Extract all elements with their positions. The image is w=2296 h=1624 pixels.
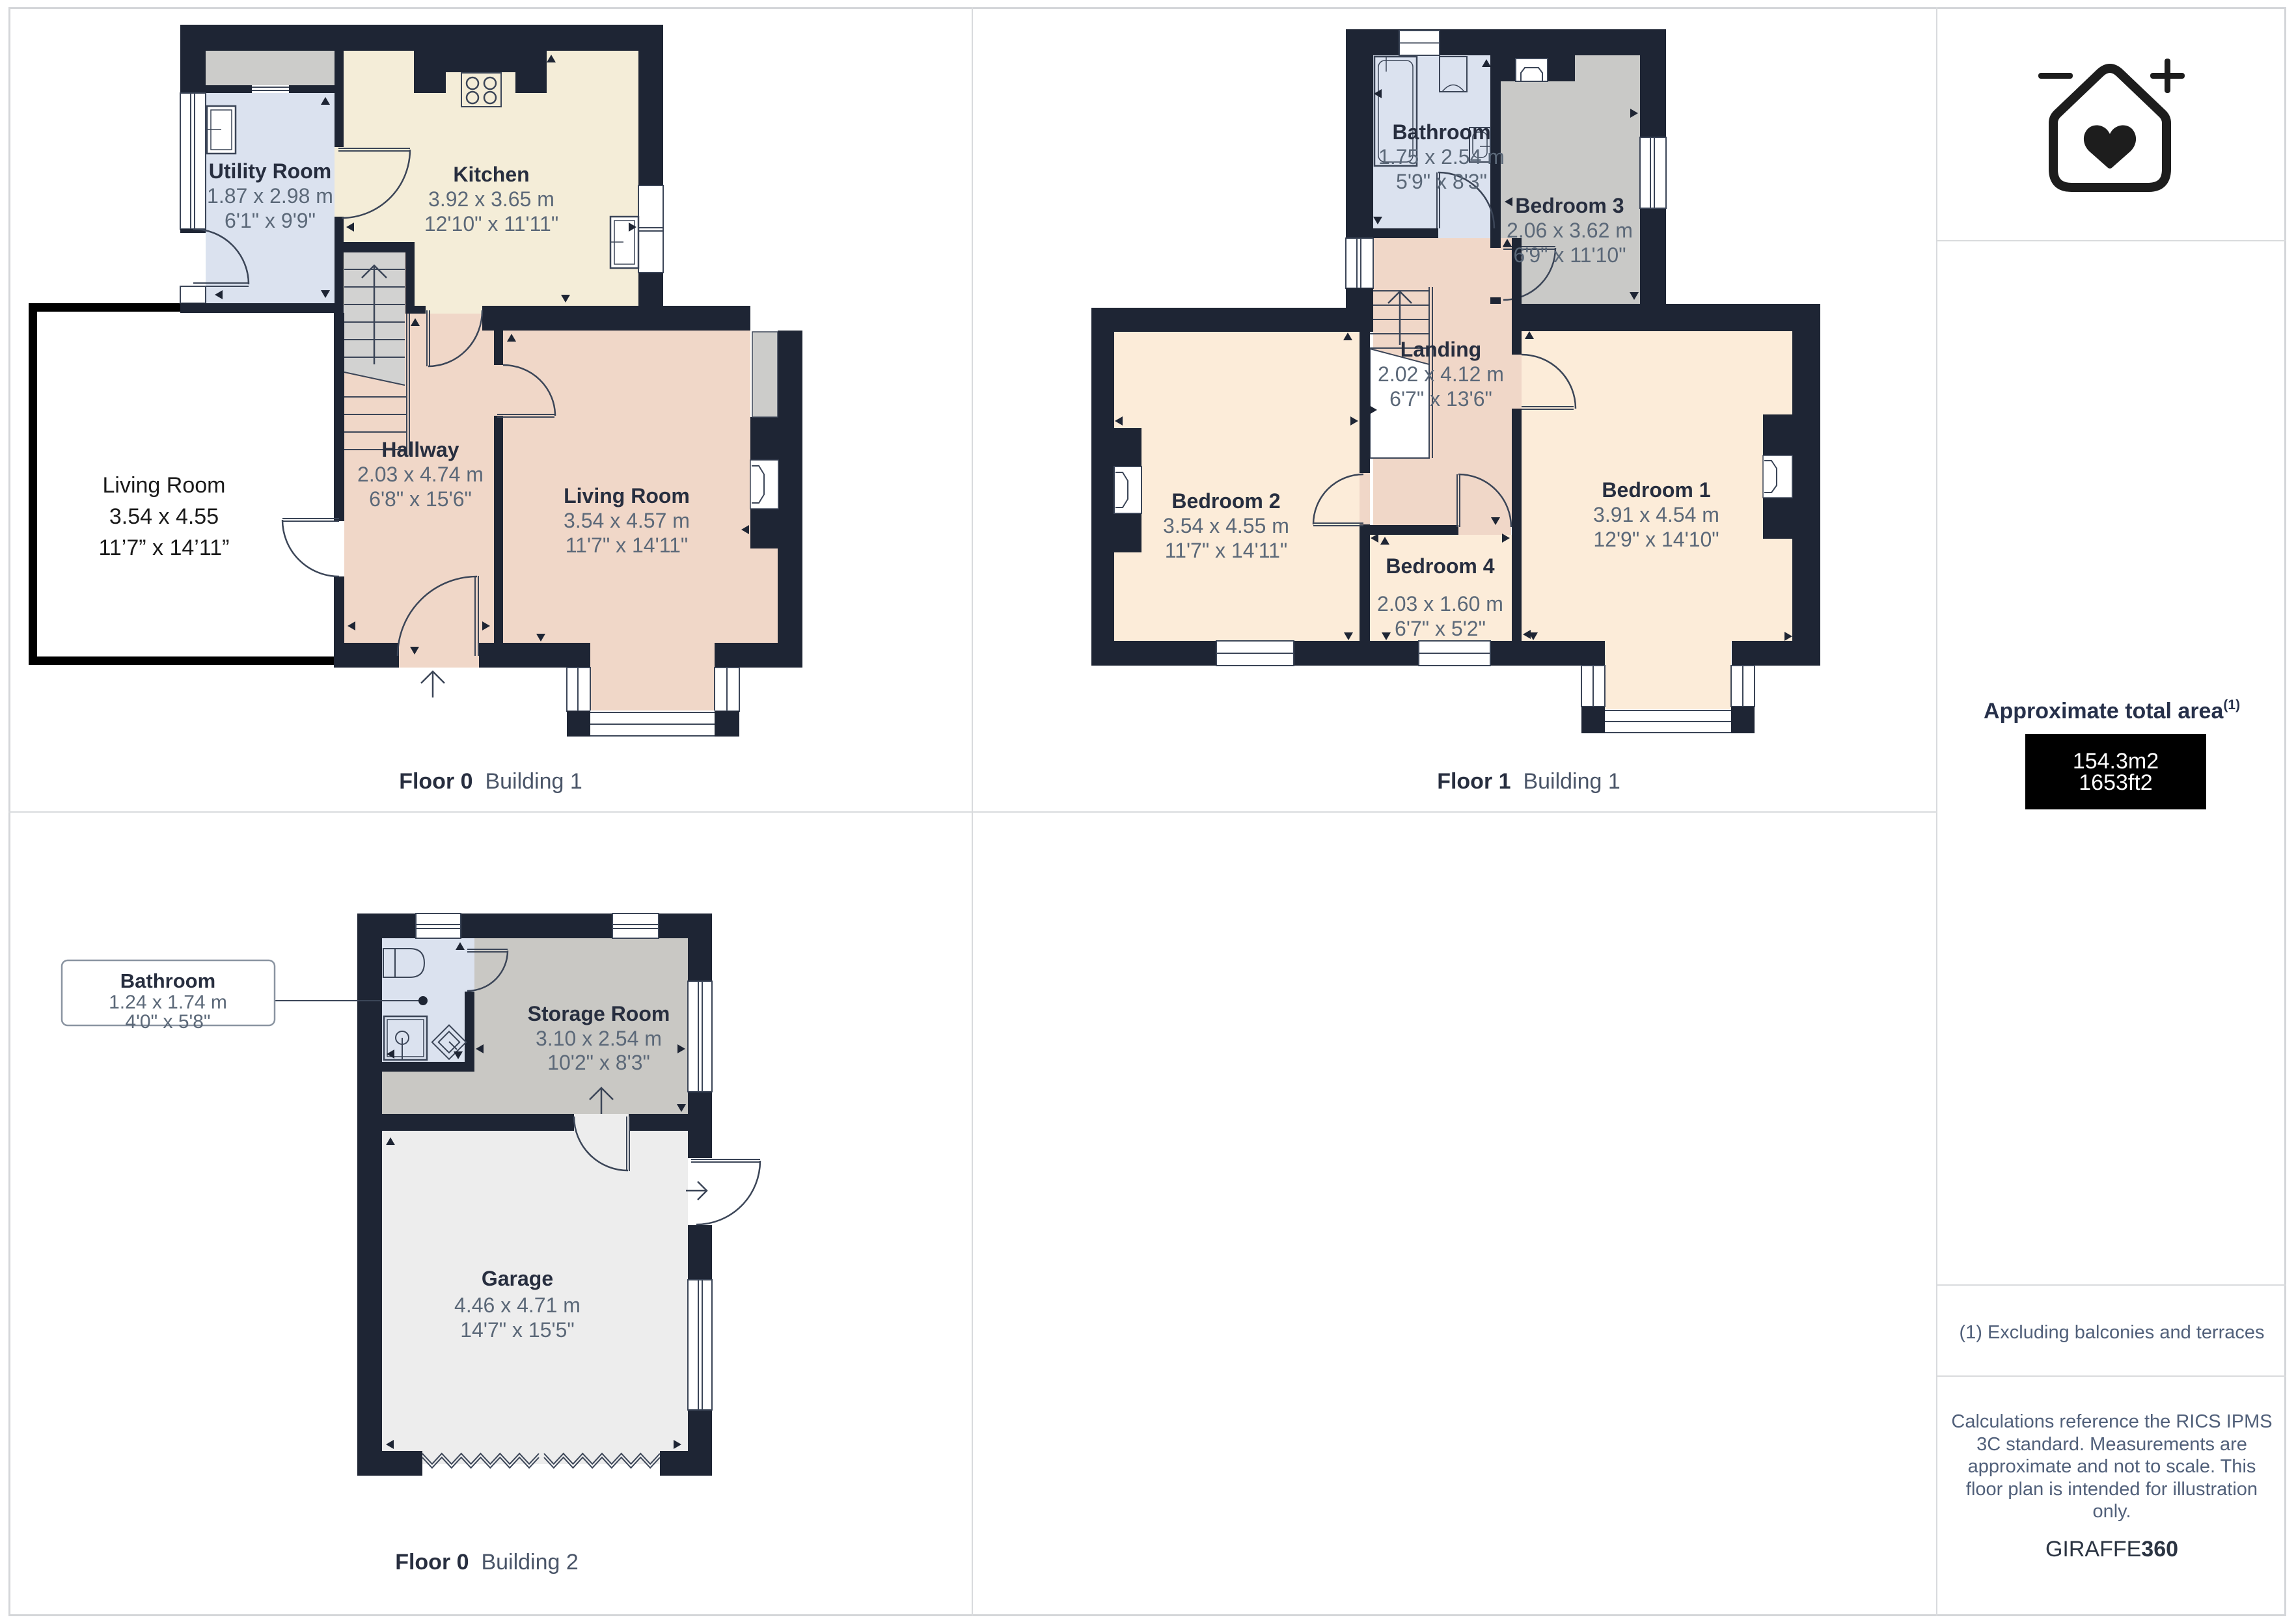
- svg-text:3.91 x 4.54 m: 3.91 x 4.54 m: [1593, 503, 1719, 526]
- svg-text:2.06 x 3.62 m: 2.06 x 3.62 m: [1507, 219, 1633, 242]
- svg-text:Storage Room: Storage Room: [528, 1002, 670, 1025]
- svg-text:6'9" x 11'10": 6'9" x 11'10": [1513, 243, 1626, 267]
- svg-text:3.92 x 3.65 m: 3.92 x 3.65 m: [428, 187, 554, 211]
- svg-text:4.46 x 4.71 m: 4.46 x 4.71 m: [454, 1293, 581, 1317]
- svg-text:Hallway: Hallway: [381, 438, 459, 461]
- svg-text:6'8" x 15'6": 6'8" x 15'6": [369, 487, 472, 511]
- svg-text:Living Room: Living Room: [103, 473, 226, 498]
- svg-text:Kitchen: Kitchen: [453, 163, 529, 186]
- svg-text:3.54 x 4.55: 3.54 x 4.55: [109, 504, 219, 529]
- svg-text:3.10 x 2.54 m: 3.10 x 2.54 m: [536, 1027, 662, 1050]
- svg-text:Bathroom: Bathroom: [120, 969, 215, 992]
- svg-text:1.87 x 2.98 m: 1.87 x 2.98 m: [207, 184, 333, 208]
- svg-text:11'7" x 14'11": 11'7" x 14'11": [566, 534, 689, 557]
- svg-text:14'7" x 15'5": 14'7" x 15'5": [460, 1318, 575, 1342]
- svg-text:Floor 0 Building 1: Floor 0 Building 1: [399, 769, 582, 794]
- svg-text:3.54 x 4.57 m: 3.54 x 4.57 m: [564, 509, 690, 532]
- svg-text:1.75 x 2.54 m: 1.75 x 2.54 m: [1378, 145, 1505, 169]
- svg-text:Living Room: Living Room: [564, 484, 690, 507]
- svg-text:Landing: Landing: [1401, 338, 1481, 361]
- svg-text:3.54 x 4.55 m: 3.54 x 4.55 m: [1163, 514, 1289, 537]
- svg-text:Floor 1 Building 1: Floor 1 Building 1: [1437, 769, 1620, 794]
- svg-text:Bedroom 4: Bedroom 4: [1386, 554, 1494, 578]
- svg-text:10'2" x 8'3": 10'2" x 8'3": [547, 1051, 650, 1074]
- svg-text:11'7" x 14'11": 11'7" x 14'11": [1165, 539, 1288, 562]
- svg-text:2.03 x 1.60 m: 2.03 x 1.60 m: [1377, 592, 1503, 616]
- svg-text:Garage: Garage: [482, 1267, 553, 1290]
- svg-text:6'7" x 5'2": 6'7" x 5'2": [1395, 617, 1486, 640]
- svg-text:Utility Room: Utility Room: [209, 159, 331, 183]
- svg-text:4'0" x 5'8": 4'0" x 5'8": [125, 1011, 210, 1033]
- svg-text:Bedroom 3: Bedroom 3: [1515, 194, 1624, 217]
- svg-text:Floor 0 Building 2: Floor 0 Building 2: [395, 1550, 579, 1575]
- svg-text:5'9" x 8'3": 5'9" x 8'3": [1396, 170, 1487, 193]
- svg-text:6'1" x 9'9": 6'1" x 9'9": [225, 209, 316, 232]
- svg-text:Bathroom: Bathroom: [1392, 120, 1490, 144]
- svg-text:Bedroom 2: Bedroom 2: [1171, 489, 1280, 513]
- svg-text:1.24 x 1.74 m: 1.24 x 1.74 m: [109, 992, 227, 1013]
- svg-text:6'7" x 13'6": 6'7" x 13'6": [1389, 387, 1492, 411]
- svg-text:2.02 x 4.12 m: 2.02 x 4.12 m: [1378, 362, 1504, 386]
- svg-text:11’7” x 14’11”: 11’7” x 14’11”: [99, 535, 230, 560]
- svg-text:Bedroom 1: Bedroom 1: [1602, 478, 1710, 502]
- svg-text:12'10" x 11'11": 12'10" x 11'11": [424, 212, 558, 236]
- svg-text:2.03 x 4.74 m: 2.03 x 4.74 m: [357, 463, 484, 486]
- svg-text:12'9" x 14'10": 12'9" x 14'10": [1593, 528, 1719, 551]
